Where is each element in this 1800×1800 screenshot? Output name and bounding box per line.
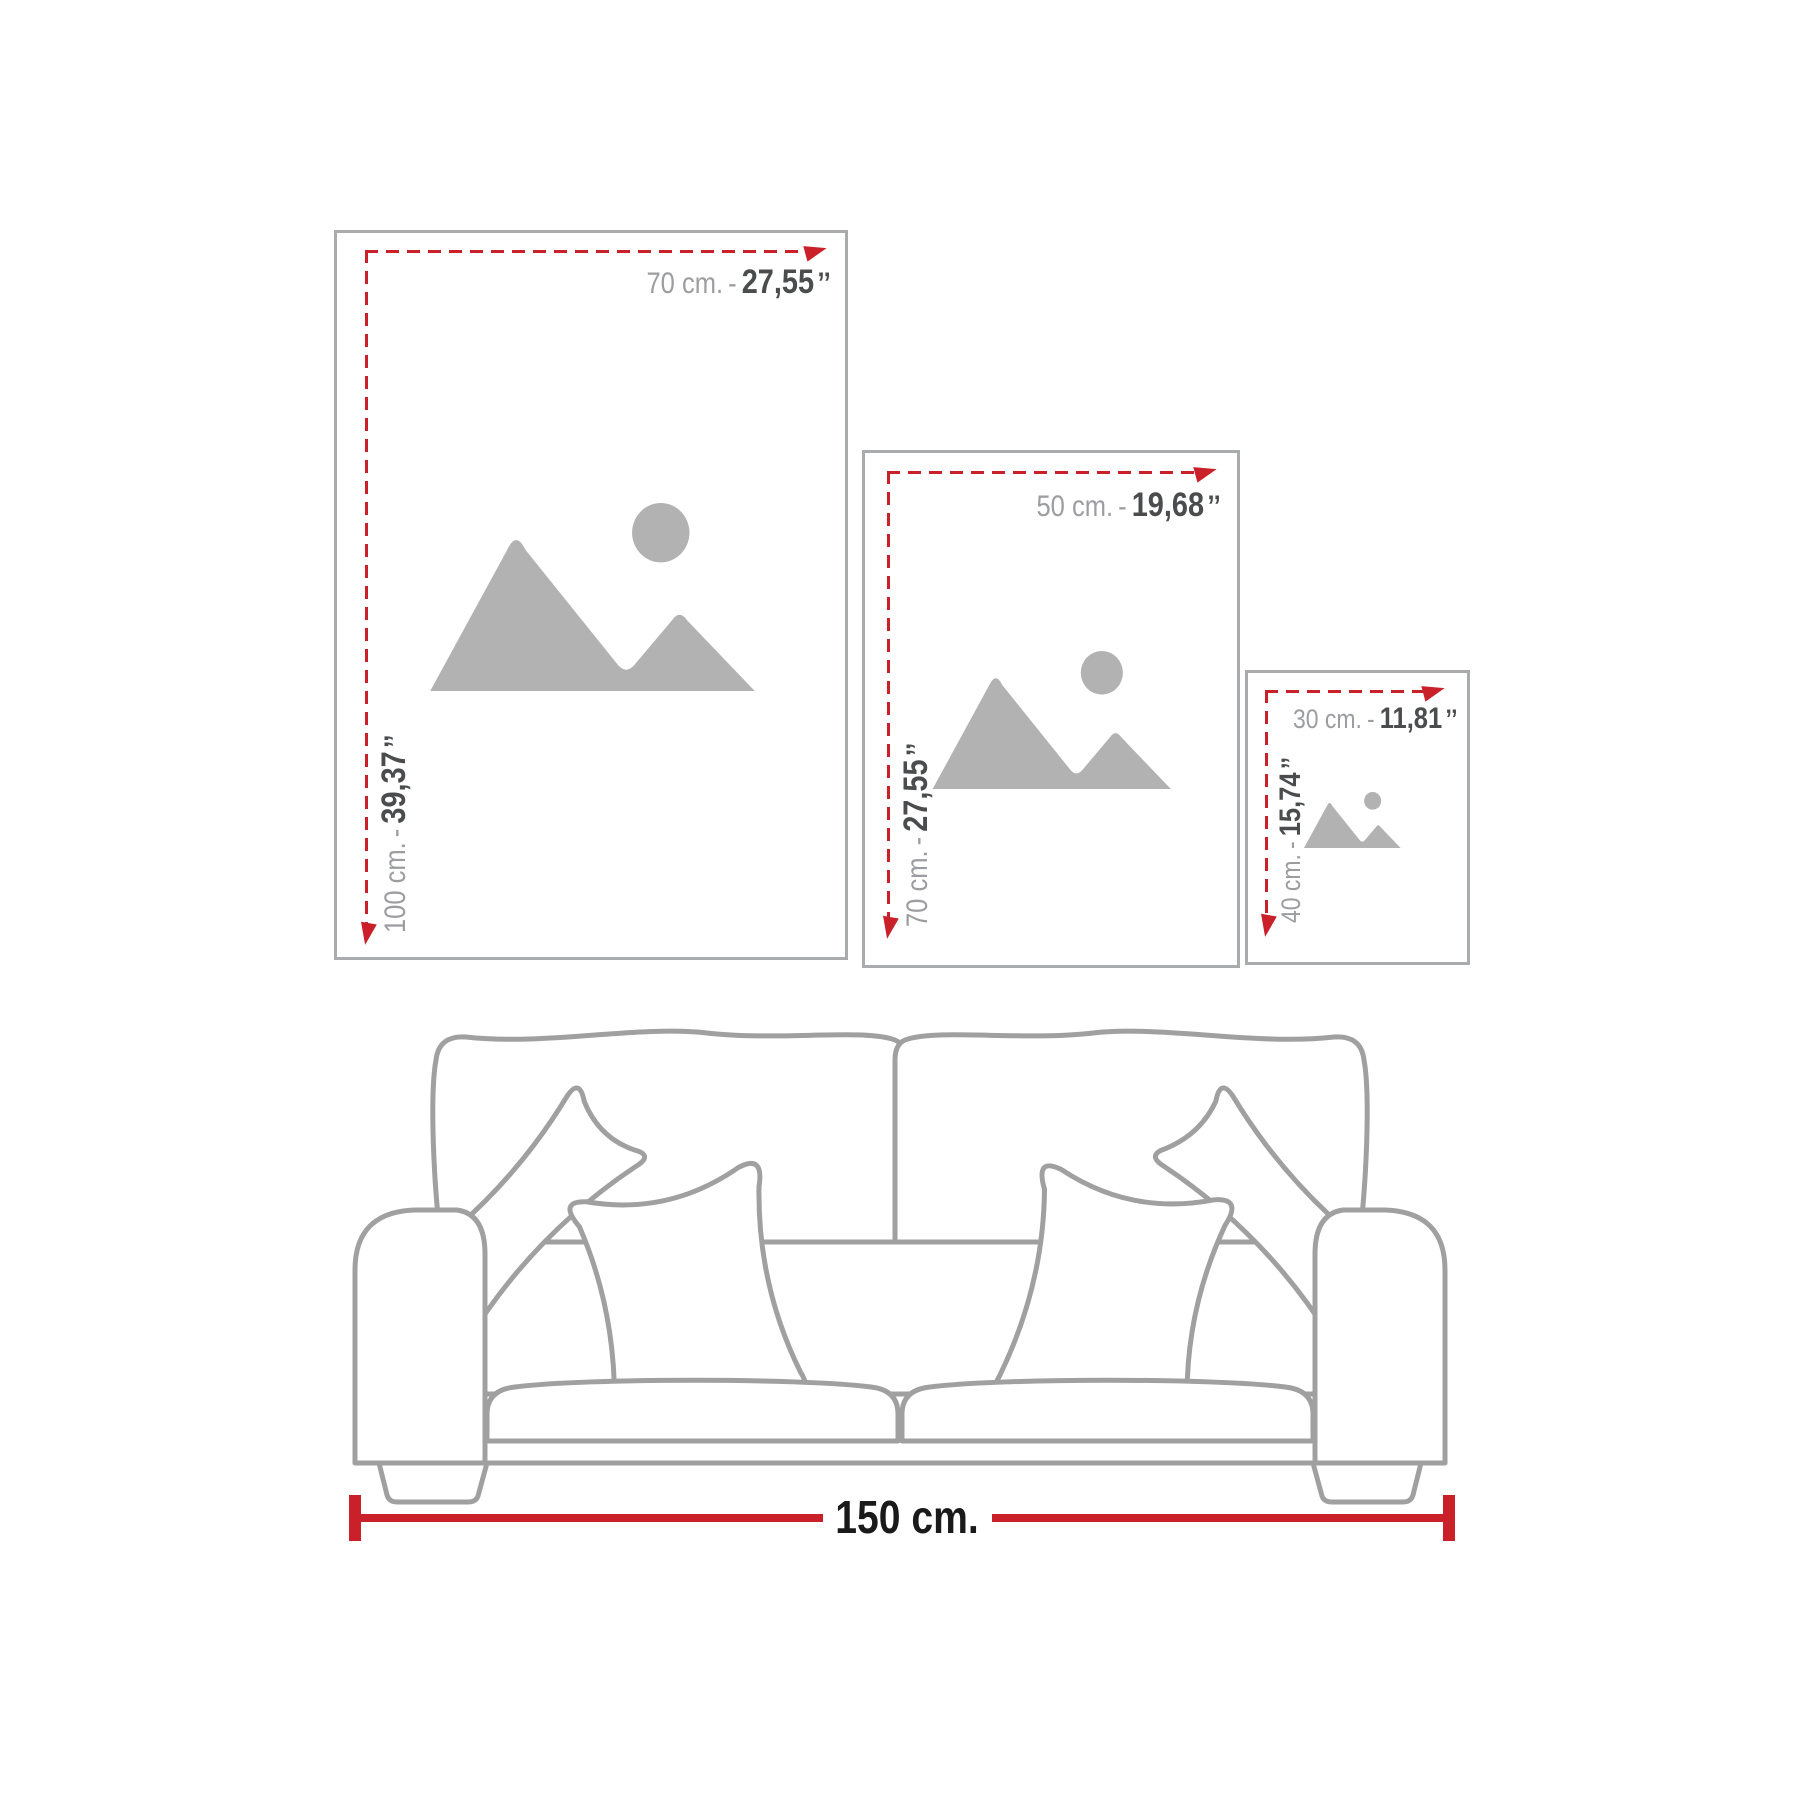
height-imperial: 27,55 [897, 759, 935, 831]
height-dimension-line [1265, 690, 1268, 918]
inch-mark: ’’ [1276, 757, 1306, 772]
height-dimension-line [365, 250, 368, 926]
sofa-foot-right [1313, 1463, 1421, 1502]
measure-line-left [361, 1514, 823, 1522]
height-imperial: 39,37 [375, 751, 413, 823]
separator: - [379, 824, 412, 843]
width-dimension-label: 30 cm.-11,81’’ [1293, 702, 1457, 736]
arrow-right-icon [1421, 680, 1446, 701]
image-placeholder-icon [931, 651, 1171, 789]
sofa-seat-right [902, 1380, 1313, 1441]
separator: - [901, 832, 934, 851]
measure-end-cap-left [349, 1495, 361, 1541]
sofa-arm-right [1315, 1210, 1445, 1463]
width-dimension-line [1265, 690, 1423, 693]
height-dimension-label: 100 cm.-39,37’’ [375, 735, 414, 933]
height-metric: 100 cm. [379, 842, 412, 933]
width-dimension-line [365, 250, 809, 253]
arrow-down-icon [357, 922, 377, 946]
inch-mark: ’’ [901, 743, 934, 760]
size-guide-canvas: 70 cm.-27,55’’ 100 cm.-39,37’’ 50 cm.-19… [0, 0, 1800, 1800]
inch-mark: ’’ [1442, 704, 1457, 734]
sofa-illustration [345, 1000, 1455, 1510]
width-metric: 30 cm. [1293, 704, 1362, 734]
inch-mark: ’’ [379, 735, 412, 752]
poster-frame-70x100: 70 cm.-27,55’’ 100 cm.-39,37’’ [334, 230, 848, 960]
poster-frame-30x40: 30 cm.-11,81’’ 40 cm.-15,74’’ [1245, 670, 1470, 965]
sofa-width-label: 150 cm. [835, 1490, 980, 1544]
width-dimension-line [887, 471, 1195, 474]
arrow-down-icon [879, 916, 899, 940]
arrow-right-icon [1193, 461, 1218, 482]
sofa-arm-left [355, 1210, 485, 1463]
width-imperial: 19,68 [1132, 486, 1204, 524]
image-placeholder-icon [428, 503, 755, 691]
width-dimension-label: 50 cm.-19,68’’ [1037, 486, 1221, 525]
width-dimension-label: 70 cm.-27,55’’ [647, 263, 831, 302]
inch-mark: ’’ [1204, 490, 1221, 523]
width-imperial: 27,55 [742, 263, 814, 301]
inch-mark: ’’ [814, 267, 831, 300]
separator: - [1276, 836, 1306, 854]
poster-frame-50x70: 50 cm.-19,68’’ 70 cm.-27,55’’ [862, 450, 1240, 968]
image-placeholder-icon [1303, 792, 1401, 848]
width-metric: 70 cm. [647, 267, 724, 300]
separator: - [723, 267, 742, 300]
height-metric: 70 cm. [901, 850, 934, 927]
separator: - [1361, 704, 1379, 734]
sofa-foot-left [379, 1463, 487, 1502]
measure-end-cap-right [1443, 1495, 1455, 1541]
height-metric: 40 cm. [1276, 854, 1306, 923]
width-metric: 50 cm. [1037, 490, 1114, 523]
arrow-right-icon [803, 240, 828, 261]
width-imperial: 11,81 [1379, 702, 1441, 735]
sofa-seat-left [487, 1380, 898, 1441]
separator: - [1113, 490, 1132, 523]
measure-line-right [992, 1514, 1443, 1522]
height-dimension-line [887, 471, 890, 921]
